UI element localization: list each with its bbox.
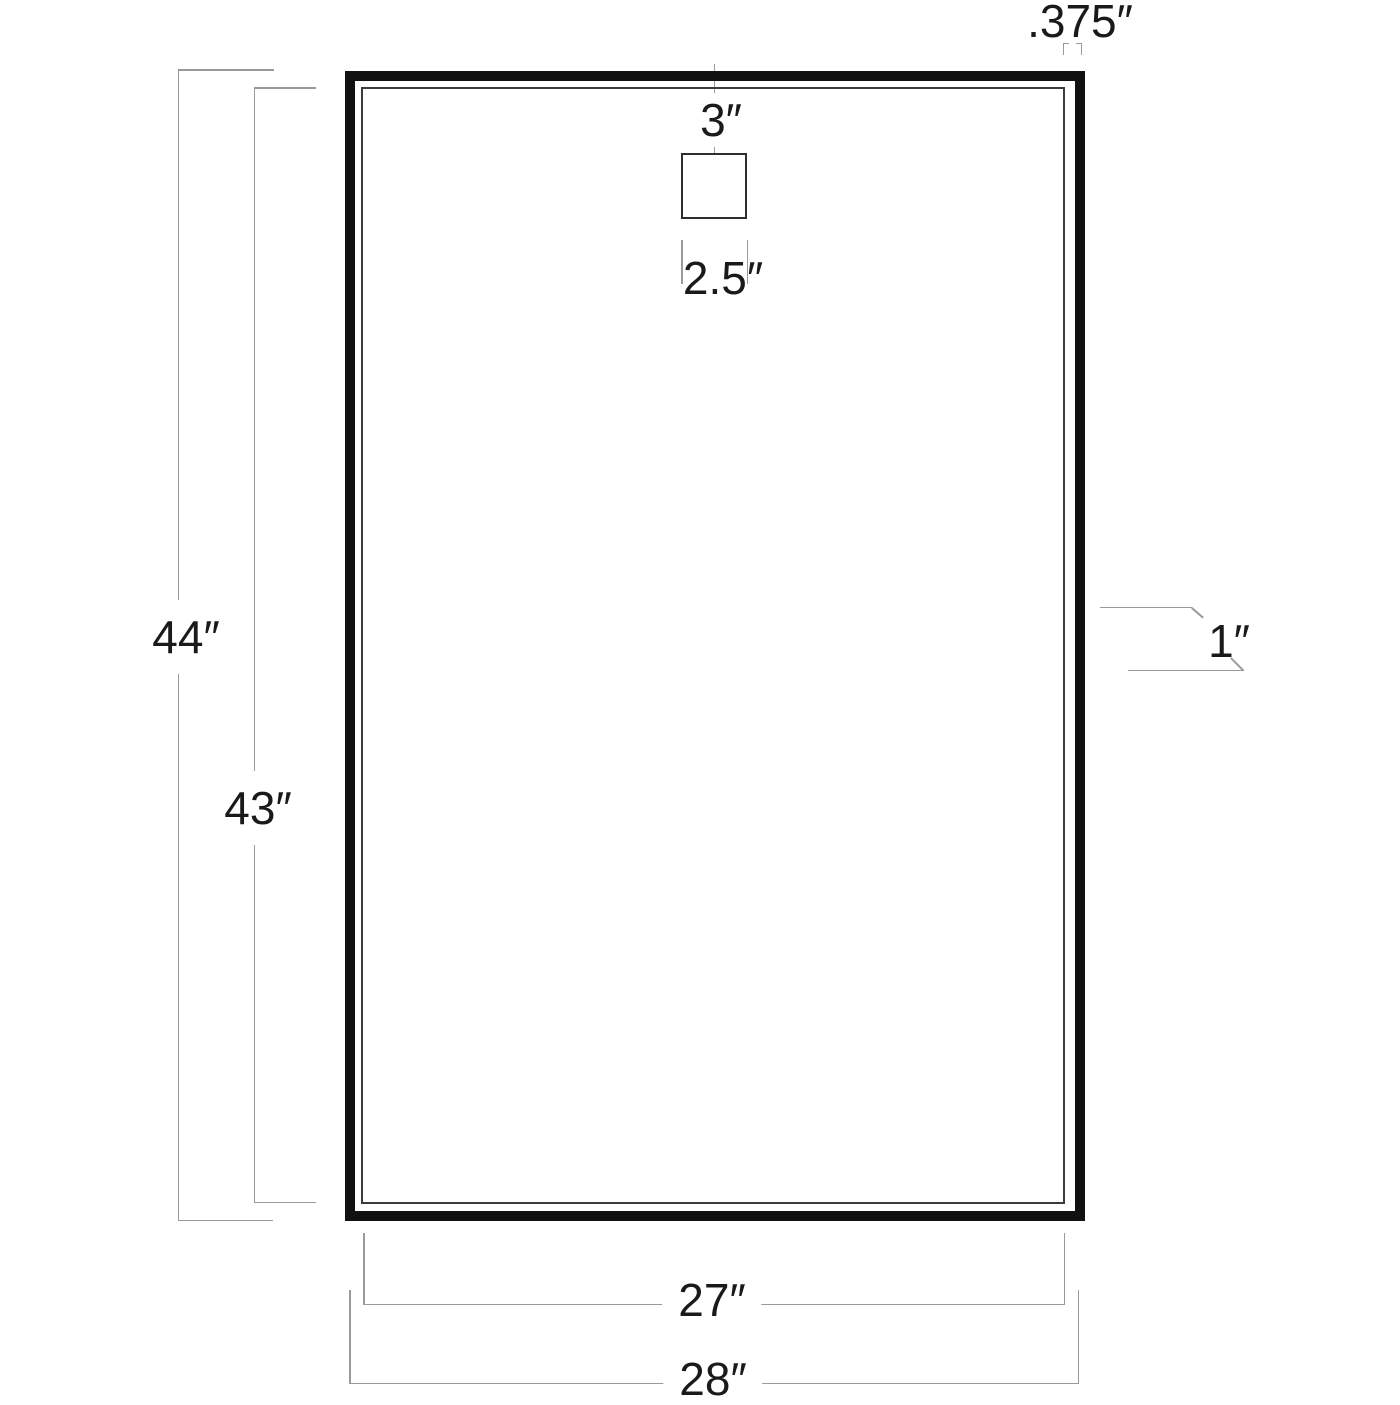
dim-27-riser-left: [363, 1233, 365, 1305]
dim-1-leader-top: [1100, 607, 1192, 609]
dim-44-extension-bottom: [178, 1220, 273, 1222]
dimension-diagram: 3″ 2.5″ 44″ 43″ 27″ 28″ 1″ .375″: [0, 0, 1400, 1400]
label-frame-face: .375″: [1027, 0, 1133, 44]
dim-1-leader-top-tick: [1192, 607, 1204, 618]
label-overall-width: 28″: [663, 1356, 762, 1402]
label-hanger-top-offset: 3″: [695, 93, 747, 147]
label-hanger-width: 2.5″: [683, 255, 763, 301]
dim-27-riser-right: [1064, 1233, 1066, 1305]
dim-28-riser-right: [1078, 1290, 1080, 1384]
label-overall-height: 44″: [147, 600, 224, 674]
dim-28-riser-left: [349, 1290, 351, 1384]
dim-43-vertical-line: [254, 87, 256, 1203]
label-depth: 1″: [1208, 618, 1250, 664]
dim-1-leader-bottom: [1128, 670, 1244, 672]
hanger-bracket-square: [681, 153, 747, 219]
dim-43-extension-top: [254, 87, 316, 89]
label-inner-height: 43″: [219, 771, 296, 845]
dim-44-extension-top: [178, 69, 274, 71]
label-inner-width: 27″: [662, 1277, 761, 1323]
dim-43-extension-bottom: [254, 1202, 316, 1204]
